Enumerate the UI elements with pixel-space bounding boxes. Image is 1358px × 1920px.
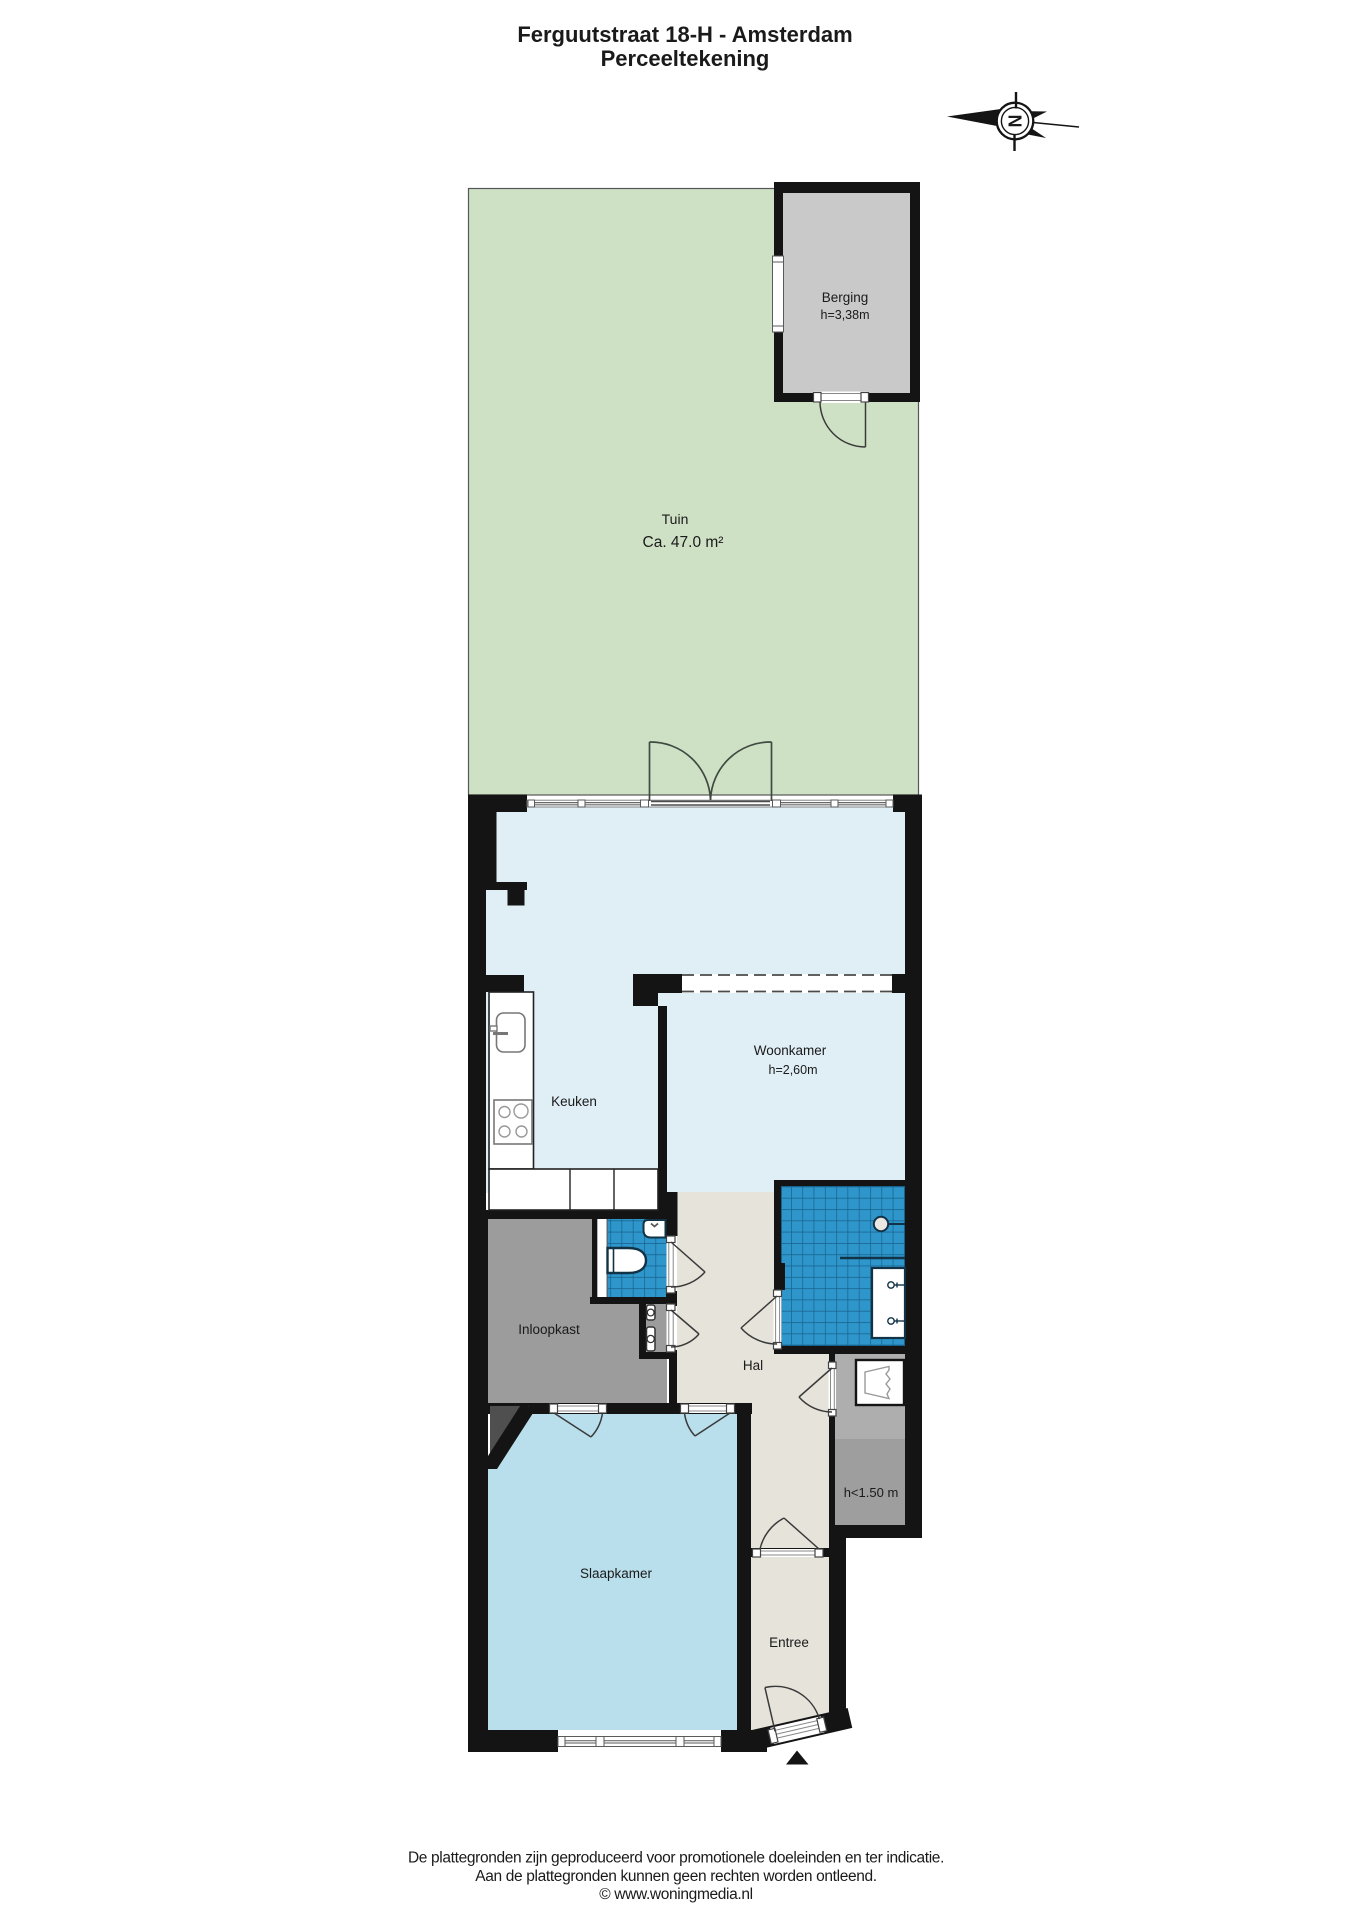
svg-text:Ferguutstraat 18-H - Amsterdam: Ferguutstraat 18-H - Amsterdam (517, 22, 852, 47)
svg-text:De plattegronden zijn geproduc: De plattegronden zijn geproduceerd voor … (408, 1850, 944, 1867)
svg-text:© www.woningmedia.nl: © www.woningmedia.nl (599, 1886, 752, 1903)
svg-text:Woonkamer: Woonkamer (754, 1043, 827, 1058)
svg-text:Perceeltekening: Perceeltekening (601, 46, 770, 71)
svg-text:Tuin: Tuin (662, 511, 689, 527)
svg-text:Entree: Entree (769, 1635, 809, 1650)
svg-text:Inloopkast: Inloopkast (518, 1322, 580, 1337)
svg-text:h=2,60m: h=2,60m (769, 1063, 818, 1077)
svg-text:Berging: Berging (822, 290, 869, 305)
svg-text:Hal: Hal (743, 1358, 763, 1373)
svg-text:Ca. 47.0 m²: Ca. 47.0 m² (643, 534, 724, 551)
svg-text:Aan de plattegronden kunnen ge: Aan de plattegronden kunnen geen rechten… (475, 1868, 876, 1885)
svg-text:Keuken: Keuken (551, 1094, 597, 1109)
svg-text:Slaapkamer: Slaapkamer (580, 1566, 653, 1581)
svg-text:h<1.50 m: h<1.50 m (844, 1485, 899, 1500)
svg-text:N: N (1006, 115, 1026, 128)
svg-text:h=3,38m: h=3,38m (821, 308, 870, 322)
